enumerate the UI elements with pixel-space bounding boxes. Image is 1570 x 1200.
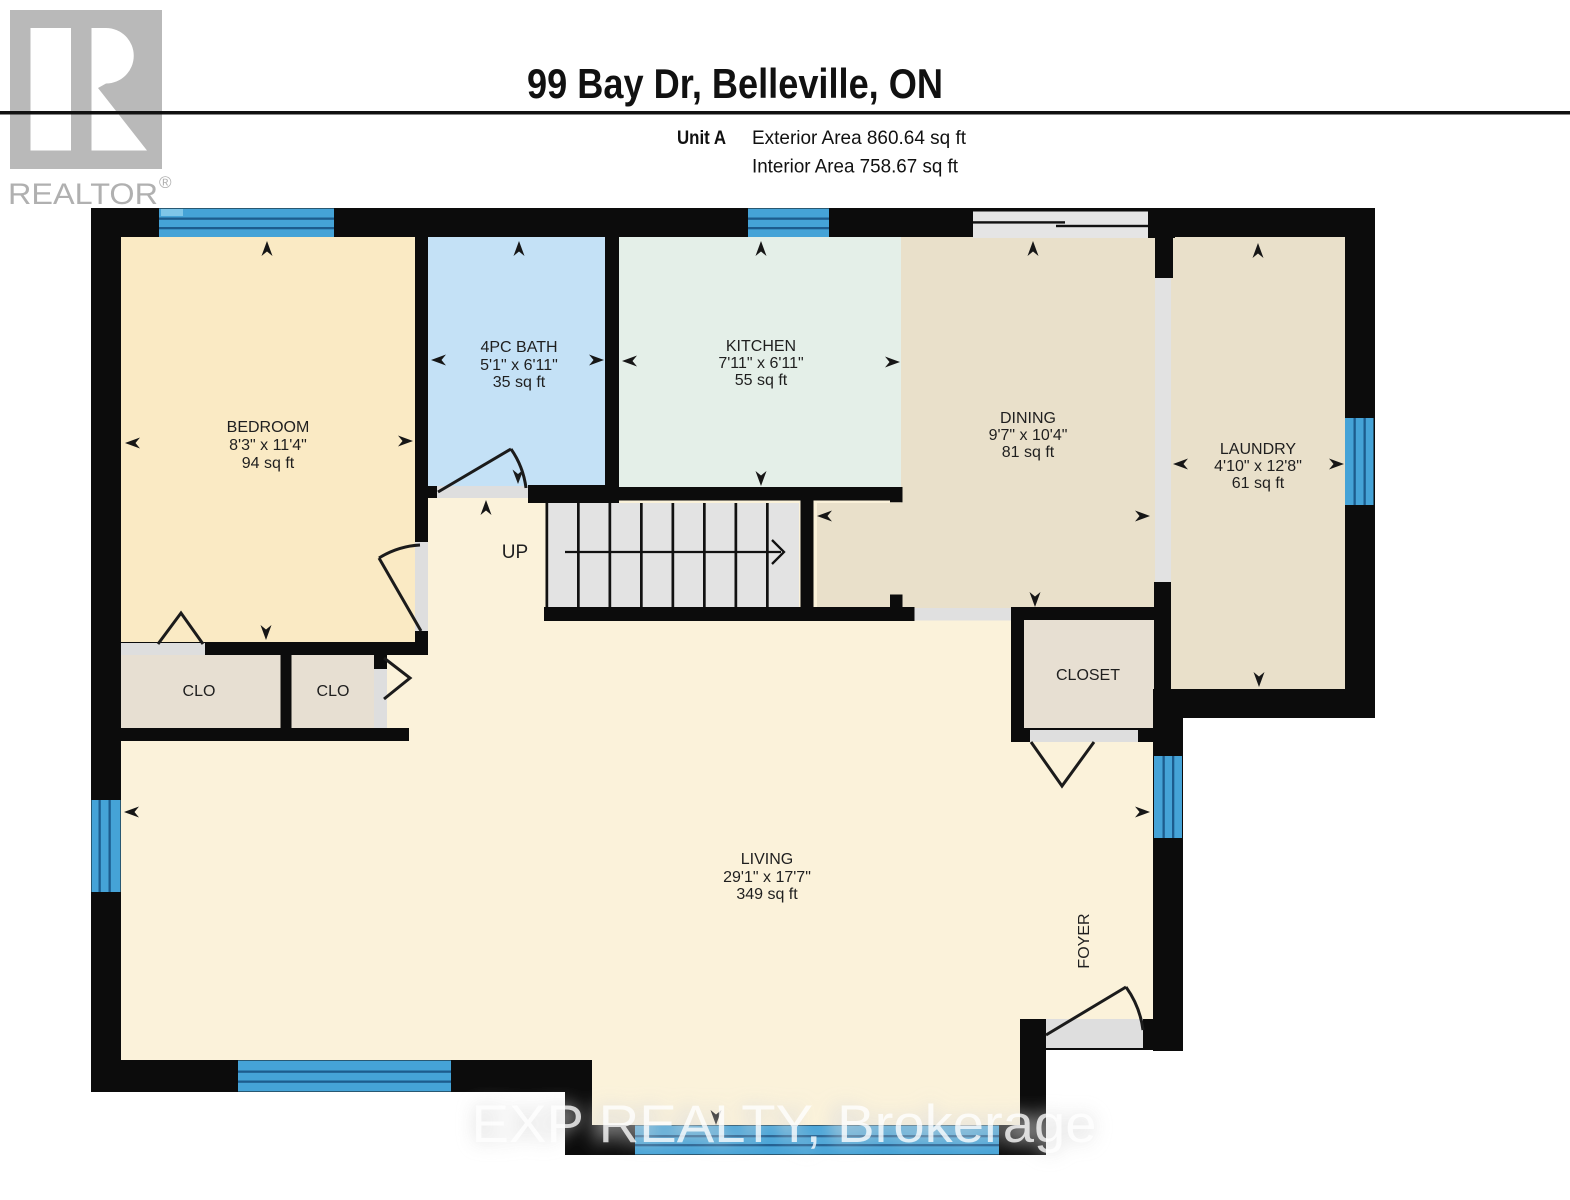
svg-text:CLO: CLO <box>183 683 216 700</box>
svg-text:CLO: CLO <box>317 683 350 700</box>
svg-text:7'11" x 6'11": 7'11" x 6'11" <box>718 355 803 372</box>
svg-text:94 sq ft: 94 sq ft <box>242 455 295 472</box>
svg-text:LAUNDRY: LAUNDRY <box>1220 441 1297 458</box>
svg-text:Unit A: Unit A <box>677 127 726 149</box>
svg-text:EXP REALTY, Brokerage: EXP REALTY, Brokerage <box>472 1095 1097 1154</box>
svg-text:55 sq ft: 55 sq ft <box>735 372 788 389</box>
svg-text:4'10" x 12'8": 4'10" x 12'8" <box>1214 458 1302 475</box>
svg-text:9'7" x 10'4": 9'7" x 10'4" <box>989 427 1068 444</box>
svg-text:UP: UP <box>502 542 528 563</box>
svg-text:29'1" x 17'7": 29'1" x 17'7" <box>723 869 811 886</box>
svg-text:8'3" x 11'4": 8'3" x 11'4" <box>229 437 307 454</box>
svg-text:Interior Area 758.67 sq ft: Interior Area 758.67 sq ft <box>752 156 959 178</box>
svg-text:LIVING: LIVING <box>741 851 793 868</box>
svg-text:61 sq ft: 61 sq ft <box>1232 475 1285 492</box>
svg-text:349 sq ft: 349 sq ft <box>736 886 798 903</box>
svg-text:CLOSET: CLOSET <box>1056 667 1120 684</box>
svg-text:DINING: DINING <box>1000 410 1056 427</box>
svg-text:FOYER: FOYER <box>1076 913 1093 968</box>
svg-text:5'1" x 6'11": 5'1" x 6'11" <box>480 357 558 374</box>
svg-text:®: ® <box>159 173 172 192</box>
svg-text:REALTOR: REALTOR <box>8 178 158 211</box>
svg-text:81 sq ft: 81 sq ft <box>1002 444 1055 461</box>
svg-text:KITCHEN: KITCHEN <box>726 338 796 355</box>
svg-text:Exterior Area 860.64 sq ft: Exterior Area 860.64 sq ft <box>752 127 967 149</box>
svg-text:4PC BATH: 4PC BATH <box>480 339 557 356</box>
svg-text:99 Bay Dr, Belleville, ON: 99 Bay Dr, Belleville, ON <box>527 60 943 107</box>
svg-text:BEDROOM: BEDROOM <box>227 419 310 436</box>
svg-text:35 sq ft: 35 sq ft <box>493 374 546 391</box>
